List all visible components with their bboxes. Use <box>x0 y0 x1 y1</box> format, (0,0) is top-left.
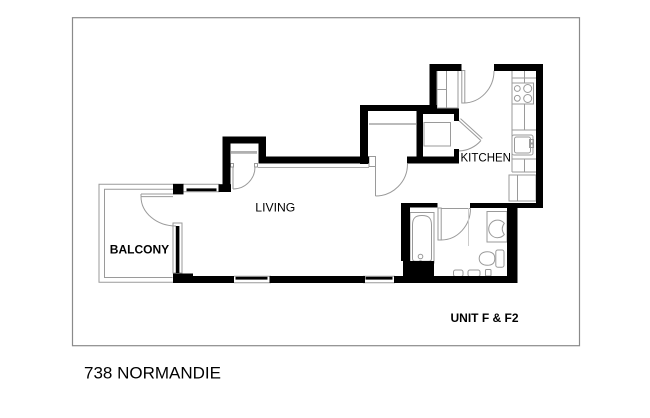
svg-text:KITCHEN: KITCHEN <box>461 153 511 165</box>
svg-text:738 NORMANDIE: 738 NORMANDIE <box>84 364 221 383</box>
svg-text:UNIT F & F2: UNIT F & F2 <box>451 311 519 325</box>
svg-text:BALCONY: BALCONY <box>110 242 169 256</box>
svg-text:LIVING: LIVING <box>255 200 295 214</box>
